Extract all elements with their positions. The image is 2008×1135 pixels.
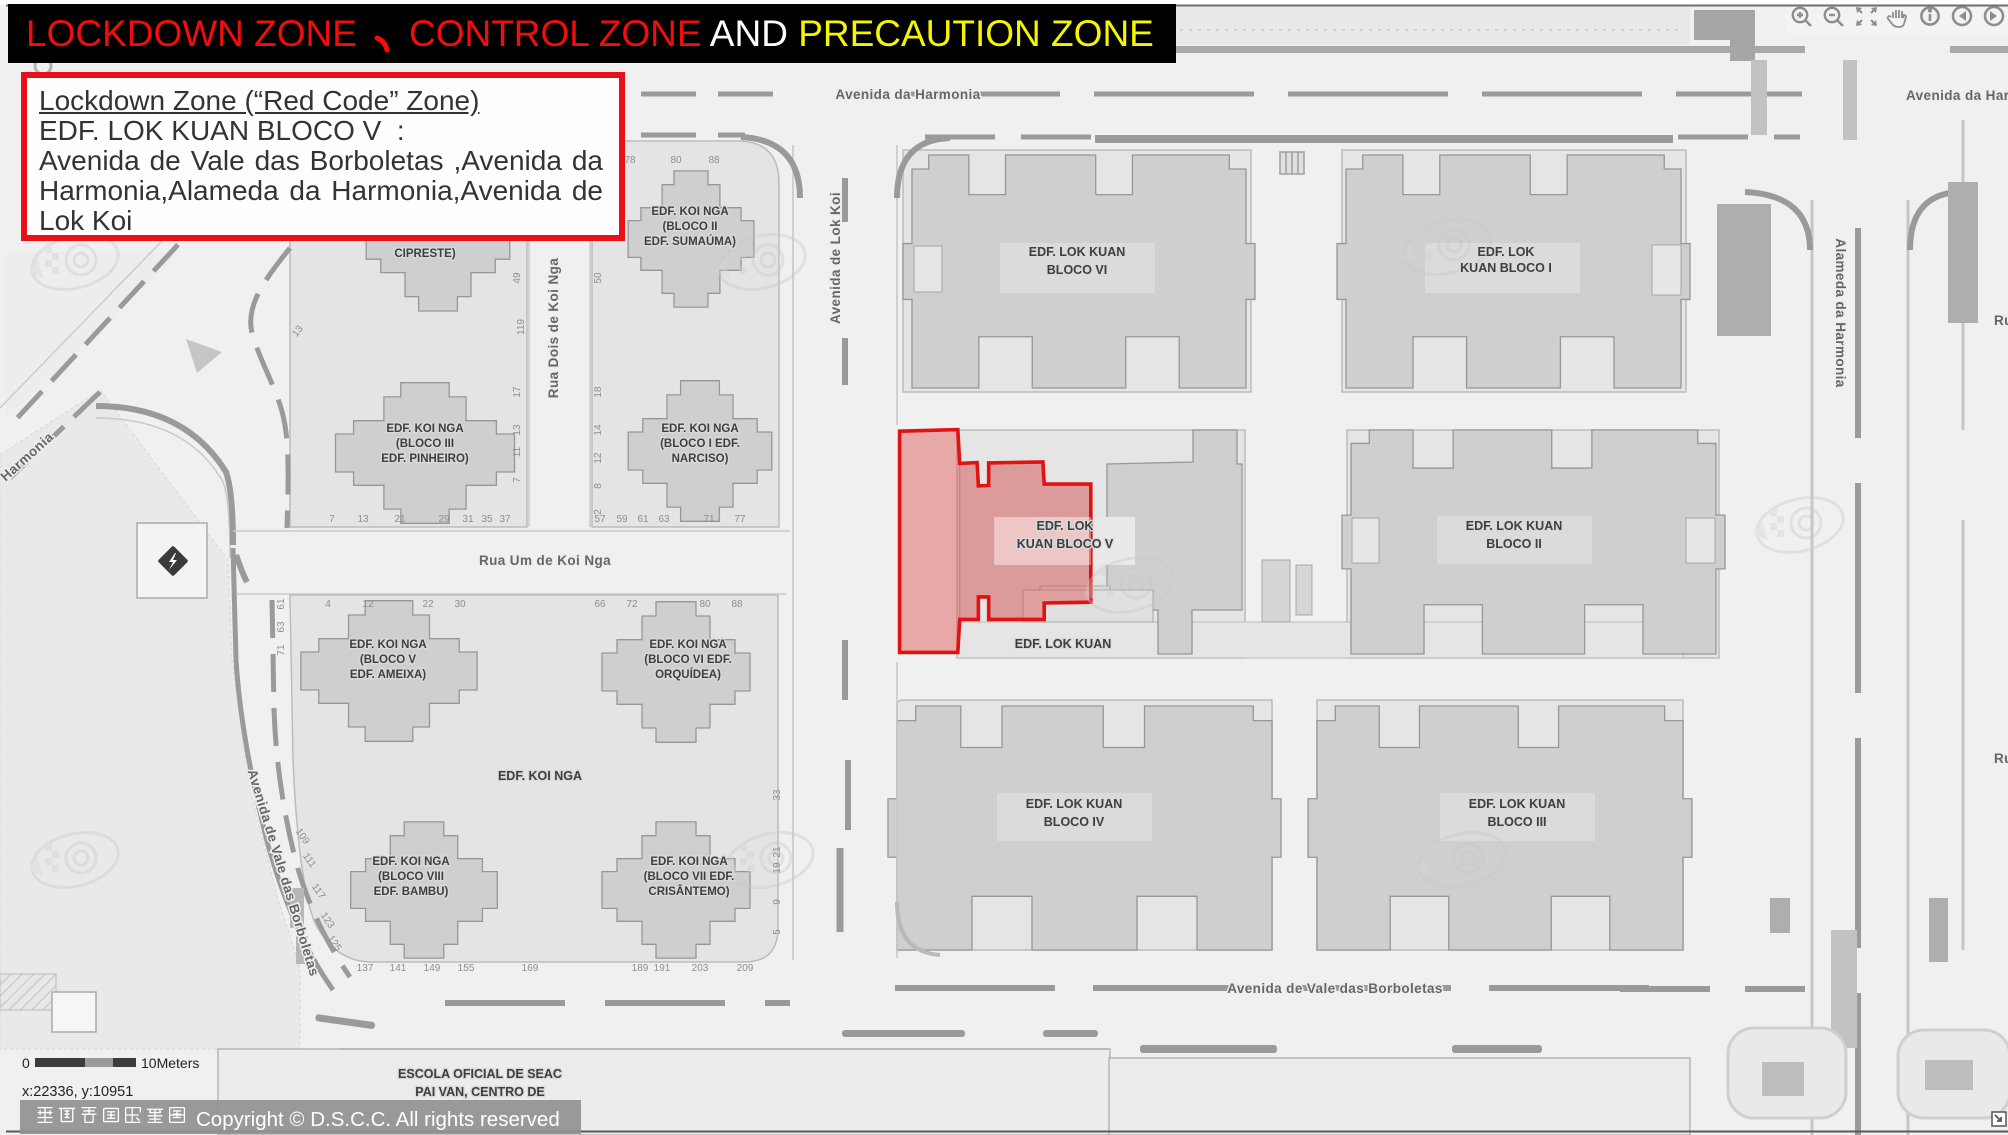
svg-text:ESCOLA OFICIAL DE SEAC: ESCOLA OFICIAL DE SEAC: [398, 1067, 562, 1081]
svg-text:EDF. LOK KUAN: EDF. LOK KUAN: [1469, 797, 1566, 811]
svg-text:4: 4: [325, 599, 331, 610]
svg-text:29: 29: [438, 514, 450, 525]
svg-text:61: 61: [637, 514, 649, 525]
svg-text:(BLOCO VII EDF.: (BLOCO VII EDF.: [644, 871, 735, 883]
svg-text:BLOCO VI: BLOCO VI: [1047, 263, 1107, 277]
svg-text:169: 169: [522, 963, 539, 974]
svg-text:7: 7: [329, 514, 335, 525]
svg-text:88: 88: [708, 155, 720, 166]
svg-text:Rua Dois de Koi Nga: Rua Dois de Koi Nga: [546, 258, 561, 398]
svg-text:Rua Um de Koi Nga: Rua Um de Koi Nga: [479, 553, 611, 568]
svg-text:Ru: Ru: [1994, 751, 2008, 766]
svg-text:189: 189: [632, 963, 649, 974]
svg-text:71: 71: [276, 644, 287, 656]
svg-text:EDF. KOI NGA: EDF. KOI NGA: [372, 856, 449, 868]
svg-text:19: 19: [772, 862, 783, 874]
svg-text:12: 12: [362, 599, 374, 610]
svg-text:78: 78: [624, 155, 636, 166]
svg-text:EDF. LOK KUAN: EDF. LOK KUAN: [1466, 519, 1563, 533]
svg-text:BLOCO IV: BLOCO IV: [1044, 815, 1105, 829]
svg-text:EDF. KOI NGA: EDF. KOI NGA: [649, 639, 726, 651]
svg-text:50: 50: [593, 272, 604, 284]
svg-text:63: 63: [658, 514, 670, 525]
svg-text:9: 9: [772, 899, 783, 905]
svg-text:ORQUÍDEA): ORQUÍDEA): [655, 668, 721, 681]
svg-text:EDF. KOI NGA: EDF. KOI NGA: [498, 769, 582, 783]
svg-text:Avenida de Vale das Borboletas: Avenida de Vale das Borboletas: [1227, 981, 1443, 996]
svg-text:80: 80: [699, 599, 711, 610]
svg-text:EDF. SUMAÚMA): EDF. SUMAÚMA): [644, 235, 736, 248]
svg-text:BLOCO III: BLOCO III: [1487, 815, 1546, 829]
svg-text:Copyright © D.S.C.C. All right: Copyright © D.S.C.C. All rights reserved: [196, 1108, 560, 1131]
svg-text:141: 141: [390, 963, 407, 974]
svg-text:137: 137: [357, 963, 374, 974]
svg-text:(BLOCO VIII: (BLOCO VIII: [378, 871, 444, 883]
svg-text:NARCISO): NARCISO): [672, 453, 729, 465]
svg-text:14: 14: [593, 424, 604, 436]
svg-text:71: 71: [703, 514, 715, 525]
svg-text:Ru: Ru: [1994, 313, 2008, 328]
svg-text:EDF. KOI NGA: EDF. KOI NGA: [349, 639, 426, 651]
svg-text:EDF. LOK KUAN: EDF. LOK KUAN: [1015, 637, 1112, 651]
svg-text:72: 72: [626, 599, 638, 610]
svg-text:191: 191: [654, 963, 671, 974]
svg-text:30: 30: [454, 599, 466, 610]
svg-text:119: 119: [516, 319, 527, 335]
svg-text:37: 37: [499, 514, 511, 525]
svg-text:61: 61: [276, 598, 287, 610]
svg-text:13: 13: [512, 424, 523, 436]
svg-text:EDF. KOI NGA: EDF. KOI NGA: [651, 206, 728, 218]
svg-text:CRISÂNTEMO): CRISÂNTEMO): [648, 885, 729, 898]
svg-text:13: 13: [357, 514, 369, 525]
svg-text:63: 63: [276, 621, 287, 633]
svg-text:33: 33: [772, 789, 783, 801]
svg-text:2: 2: [593, 509, 604, 515]
svg-text:88: 88: [731, 599, 743, 610]
svg-text:EDF. PINHEIRO): EDF. PINHEIRO): [381, 453, 469, 465]
svg-text:59: 59: [616, 514, 628, 525]
svg-text:x:22336, y:10951: x:22336, y:10951: [22, 1084, 133, 1100]
svg-text:66: 66: [594, 599, 606, 610]
svg-text:203: 203: [692, 963, 709, 974]
svg-text:EDF. KOI NGA: EDF. KOI NGA: [386, 423, 463, 435]
svg-text:EDF. LOK KUAN: EDF. LOK KUAN: [1029, 245, 1126, 259]
svg-text:12: 12: [593, 452, 604, 464]
svg-text:209: 209: [737, 963, 754, 974]
svg-text:21: 21: [772, 846, 783, 858]
svg-text:155: 155: [458, 963, 475, 974]
svg-text:PAI VAN, CENTRO DE: PAI VAN, CENTRO DE: [415, 1085, 544, 1099]
svg-text:KUAN BLOCO I: KUAN BLOCO I: [1460, 261, 1552, 275]
svg-text:31: 31: [462, 514, 474, 525]
svg-text:(BLOCO V: (BLOCO V: [360, 654, 417, 666]
svg-text:(BLOCO III: (BLOCO III: [396, 438, 454, 450]
svg-text:21: 21: [394, 514, 406, 525]
svg-text:EDF. LOK: EDF. LOK: [1478, 245, 1535, 259]
svg-text:EDF. KOI NGA: EDF. KOI NGA: [650, 856, 727, 868]
svg-text:35: 35: [481, 514, 493, 525]
svg-text:8: 8: [593, 483, 604, 489]
svg-text:EDF. AMEIXA): EDF. AMEIXA): [350, 669, 426, 681]
svg-text:EDF. LOK: EDF. LOK: [1037, 519, 1094, 533]
svg-text:(BLOCO VI EDF.: (BLOCO VI EDF.: [644, 654, 732, 666]
svg-text:(BLOCO II: (BLOCO II: [663, 221, 718, 233]
svg-text:KUAN BLOCO V: KUAN BLOCO V: [1017, 537, 1114, 551]
svg-text:11: 11: [512, 446, 523, 457]
svg-text:17: 17: [512, 386, 523, 398]
svg-text:49: 49: [512, 272, 523, 284]
svg-text:BLOCO II: BLOCO II: [1486, 537, 1542, 551]
svg-text:80: 80: [670, 155, 682, 166]
svg-text:EDF. BAMBU): EDF. BAMBU): [374, 886, 449, 898]
svg-text:EDF. KOI NGA: EDF. KOI NGA: [661, 423, 738, 435]
svg-text:22: 22: [422, 599, 434, 610]
svg-text:Avenida da Harmonia: Avenida da Harmonia: [1906, 88, 2008, 103]
svg-text:CIPRESTE): CIPRESTE): [394, 248, 456, 260]
svg-text:7: 7: [512, 477, 523, 483]
svg-text:(BLOCO I EDF.: (BLOCO I EDF.: [660, 438, 740, 450]
svg-text:Avenida de Lok Koi: Avenida de Lok Koi: [828, 192, 843, 324]
svg-text:18: 18: [593, 386, 604, 398]
svg-text:EDF. LOK KUAN: EDF. LOK KUAN: [1026, 797, 1123, 811]
svg-text:149: 149: [424, 963, 441, 974]
svg-text:77: 77: [734, 514, 746, 525]
svg-text:5: 5: [772, 929, 783, 935]
svg-text:Alameda da Harmonia: Alameda da Harmonia: [1833, 238, 1848, 387]
svg-text:Avenida da Harmonia: Avenida da Harmonia: [835, 87, 980, 102]
svg-text:10Meters: 10Meters: [141, 1055, 199, 1071]
svg-text:0: 0: [22, 1055, 30, 1071]
